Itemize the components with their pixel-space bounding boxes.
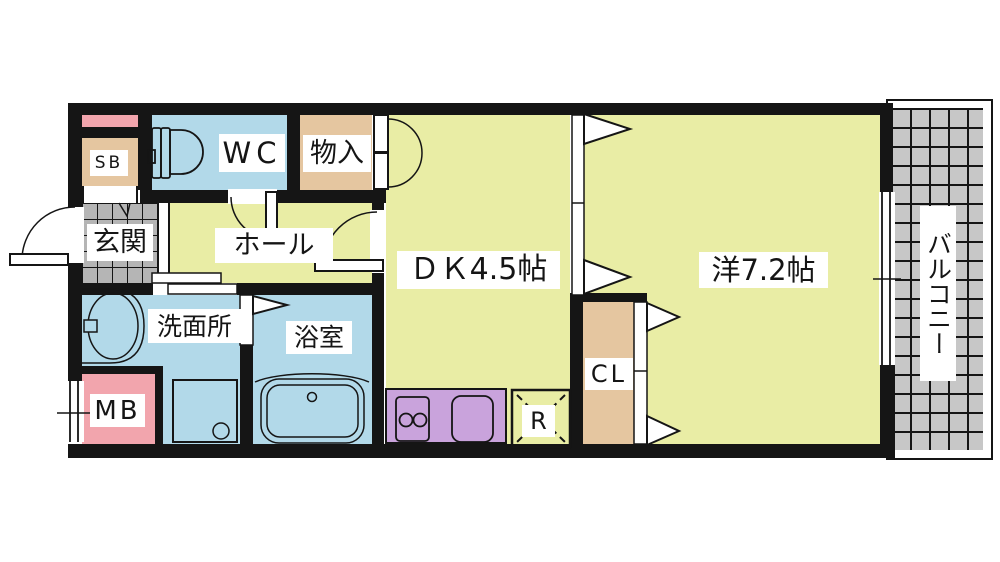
storage-double-door	[374, 115, 422, 189]
label-balcony: バルコニー	[920, 206, 956, 381]
label-meter-box: MB	[90, 394, 145, 427]
label-bathroom: 浴室	[286, 321, 352, 354]
toilet-icon	[148, 128, 203, 178]
label-closet: CL	[585, 358, 633, 390]
gas-stove-icon	[396, 397, 429, 441]
wash-basin-icon	[82, 289, 144, 363]
bathroom-folding-door	[240, 295, 287, 345]
label-dining-kitchen: ＤＫ4.5帖	[397, 251, 560, 289]
hall-washroom-sliding-door	[152, 273, 237, 294]
balcony-window	[873, 192, 901, 365]
label-hall: ホール	[215, 228, 333, 263]
washing-machine-pan-icon	[173, 380, 237, 442]
entrance-step-mark	[119, 203, 130, 216]
label-storage: 物入	[303, 135, 371, 172]
entrance-door	[10, 207, 84, 265]
label-shoe-box: SB	[90, 150, 128, 176]
sliding-partition	[572, 114, 630, 295]
label-wc: WC	[219, 134, 285, 172]
label-washroom: 洗面所	[148, 309, 241, 343]
label-entrance: 玄関	[87, 224, 153, 261]
closet-sliding-doors	[634, 302, 679, 445]
label-refrigerator: R	[522, 405, 555, 437]
bathtub-icon	[255, 374, 369, 443]
label-western-room: 洋7.2帖	[699, 252, 828, 288]
meter-box-window	[57, 381, 90, 442]
floor-plan: SB WC 物入 玄関 ホール ＤＫ4.5帖 洋7.2帖 洗面所 浴室 MB C…	[0, 0, 1000, 562]
kitchen-sink-icon	[452, 396, 493, 442]
